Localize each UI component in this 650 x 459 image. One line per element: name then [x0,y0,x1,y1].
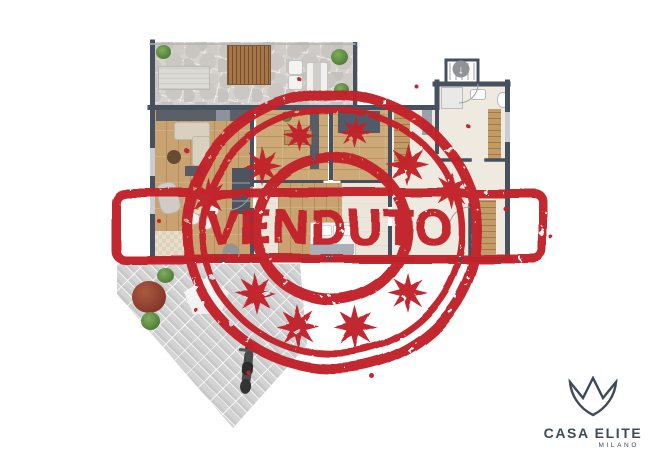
logo-city-text: MILANO [540,442,646,449]
sold-floor-plan-image: ↓ ← [0,0,650,459]
agency-logo: CASA ELITE MILANO [540,376,646,449]
logo-brand-text: CASA ELITE [540,425,646,441]
crown-icon [540,376,646,420]
stamp-text: VENDUTO [206,202,454,255]
